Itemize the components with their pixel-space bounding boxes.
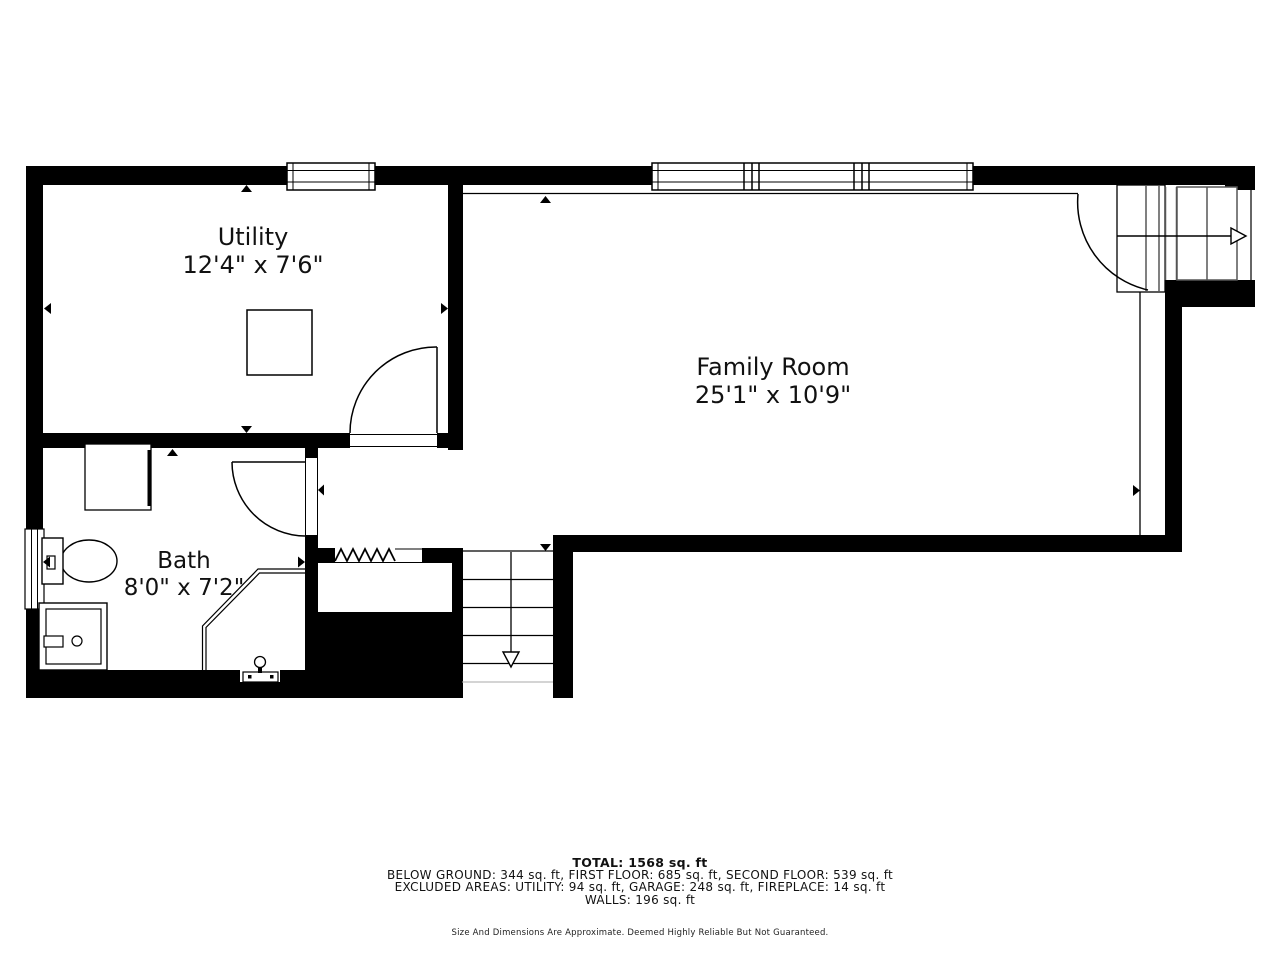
family-dim-up xyxy=(540,196,551,203)
wall-utility-right xyxy=(448,166,463,450)
bath-label: Bath xyxy=(157,548,210,574)
wall-bath-door-stub xyxy=(305,448,318,458)
wall-family-right xyxy=(1165,307,1182,552)
furnace-box xyxy=(247,310,312,375)
bath-window xyxy=(25,529,44,609)
stairs-down xyxy=(462,551,553,682)
utility-doorway xyxy=(350,431,437,450)
walls-area: WALLS: 196 sq. ft xyxy=(0,894,1280,906)
utility-dimensions: 12'4" x 7'6" xyxy=(182,251,323,279)
shower-base xyxy=(39,603,107,670)
wall-stair-right xyxy=(553,535,573,698)
bath-door-arc xyxy=(232,462,305,536)
bath-door xyxy=(232,458,318,536)
bath-dimensions: 8'0" x 7'2" xyxy=(124,575,245,601)
fireplace-mass xyxy=(305,612,463,698)
family-dim-down xyxy=(540,544,551,551)
family-dim-right xyxy=(1133,485,1140,496)
wall-hall-left-seg xyxy=(318,548,335,563)
family-room-window xyxy=(652,163,973,190)
wall-family-bottom xyxy=(553,535,1182,552)
floorplan-drawing: Utility 12'4" x 7'6" Family Room 25'1" x… xyxy=(0,0,1280,850)
bath-mirror-cabinet xyxy=(85,444,151,510)
utility-window xyxy=(287,163,375,190)
wall-stair-nook-bottom xyxy=(1165,280,1255,307)
utility-dim-right xyxy=(441,303,448,314)
bath-dim-right xyxy=(298,557,305,568)
area-summary: TOTAL: 1568 sq. ft BELOW GROUND: 344 sq.… xyxy=(0,857,1280,906)
utility-door-arc xyxy=(350,347,437,433)
utility-label: Utility xyxy=(218,223,289,251)
toilet xyxy=(42,538,117,584)
bath-dim-up xyxy=(167,449,178,456)
utility-dim-up xyxy=(241,185,252,192)
wall-closet-right xyxy=(452,548,463,612)
utility-door xyxy=(350,347,437,433)
shower-valve xyxy=(240,657,280,683)
family-room-label: Family Room xyxy=(696,353,849,381)
floorplan-page: Utility 12'4" x 7'6" Family Room 25'1" x… xyxy=(0,0,1280,960)
wall-top xyxy=(26,166,1255,185)
stairs-up xyxy=(1078,185,1251,292)
stairs-down-arrow-head xyxy=(503,652,519,667)
utility-dim-left xyxy=(44,303,51,314)
stairs-up-arrow-head xyxy=(1231,228,1246,244)
family-dim-left xyxy=(318,485,324,496)
utility-dim-down xyxy=(241,426,252,433)
zigzag-opening xyxy=(335,549,422,563)
family-room-dimensions: 25'1" x 10'9" xyxy=(695,381,851,409)
disclaimer-text: Size And Dimensions Are Approximate. Dee… xyxy=(0,928,1280,938)
excluded-areas: EXCLUDED AREAS: UTILITY: 94 sq. ft, GARA… xyxy=(0,881,1280,893)
